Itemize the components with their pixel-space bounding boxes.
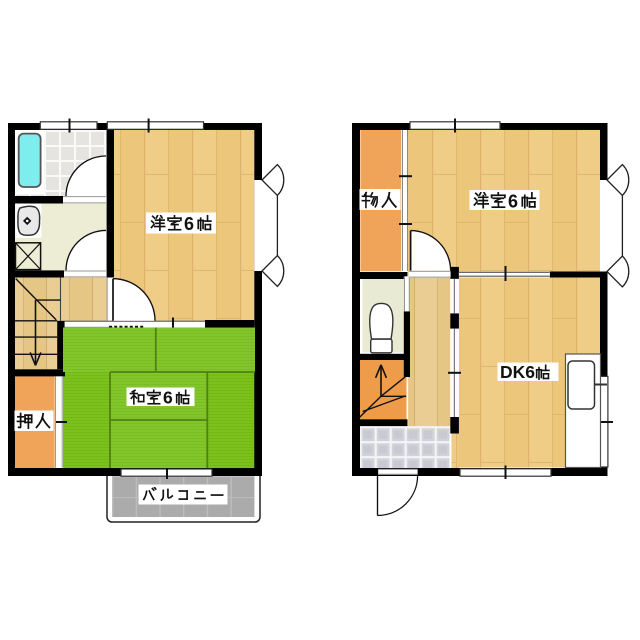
- svg-text:6: 6: [508, 192, 518, 212]
- svg-text:6: 6: [184, 214, 194, 234]
- svg-text:6: 6: [163, 388, 173, 408]
- svg-text:DK6: DK6: [500, 362, 535, 382]
